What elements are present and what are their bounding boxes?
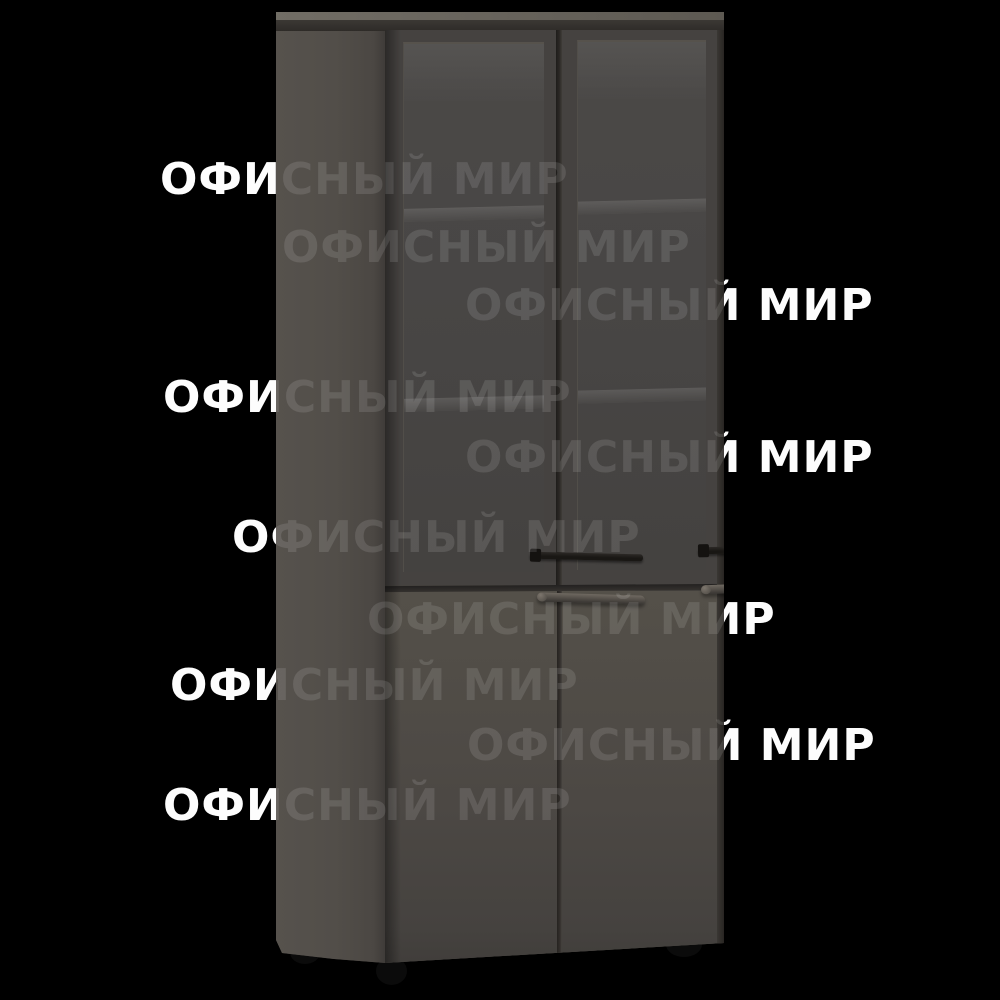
- solid-door-left: [385, 591, 557, 976]
- cabinet-front: [385, 30, 724, 970]
- solid-door-right: [562, 591, 724, 976]
- shelf-line: [403, 205, 544, 222]
- shelf-line: [577, 198, 706, 215]
- handle-glass-door-right: [698, 545, 808, 555]
- glass-pane-left: [403, 42, 544, 572]
- glass-door-right: [562, 30, 718, 585]
- glass-pane-right: [577, 40, 706, 570]
- lower-solid-doors: [385, 591, 724, 976]
- cabinet-right-edge: [717, 30, 724, 970]
- shelf-line: [403, 395, 544, 412]
- upper-glass-doors: [385, 30, 724, 585]
- office-cabinet: [272, 12, 724, 970]
- door-gap-divider: [557, 591, 562, 976]
- product-image-stage: ОФИСНЫЙ МИРОФИСНЫЙ МИРОФИСНЫЙ МИРОФИСНЫЙ…: [0, 0, 1000, 1000]
- shelf-line: [577, 387, 706, 404]
- cabinet-side-panel: [272, 19, 387, 970]
- door-gap-divider: [556, 30, 562, 585]
- glass-door-left: [385, 30, 556, 585]
